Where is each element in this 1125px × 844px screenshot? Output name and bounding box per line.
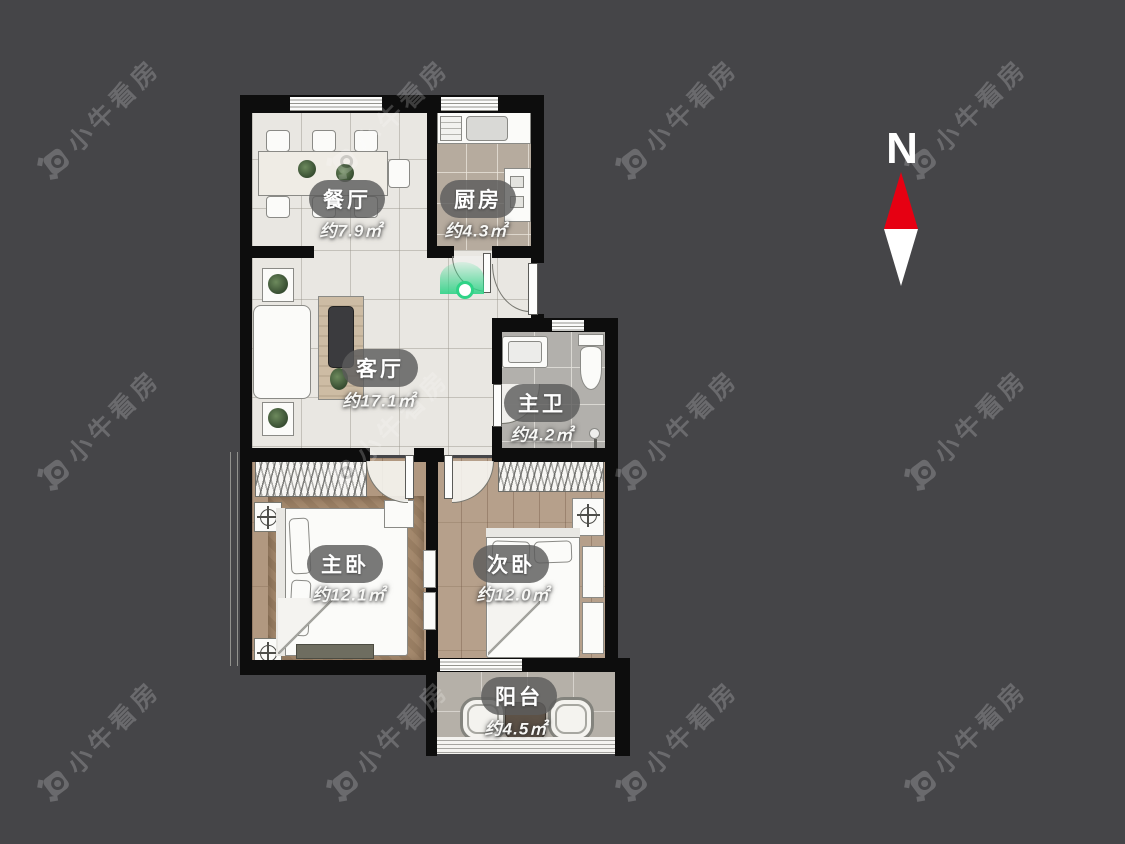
second-side-table	[582, 602, 604, 654]
watermark: 小牛看房	[31, 660, 179, 808]
watermark: 小牛看房	[898, 349, 1046, 497]
dining-window	[290, 97, 382, 111]
kitchen-drawer-unit	[440, 116, 462, 141]
bathroom-door-leaf	[493, 384, 502, 427]
wall-bath-left-a	[492, 318, 502, 384]
bathroom-window	[552, 320, 584, 331]
master-bedroom-door-leaf	[405, 455, 414, 499]
second-bedroom-door-leaf	[444, 455, 453, 499]
master-nightstand	[384, 500, 414, 528]
second-bed-headboard	[486, 528, 580, 538]
living-plant	[268, 274, 288, 294]
exterior-contour-line	[230, 452, 238, 666]
room-area-kitchen: 约4.3㎡	[445, 217, 508, 242]
kitchen-window	[441, 97, 498, 111]
sliding-door-panel	[423, 550, 436, 588]
floorplan-page: { "title": "户型图", "compass": { "label": …	[0, 0, 1125, 844]
second-duvet-fold	[488, 600, 540, 656]
watermark-bull-logo-icon	[34, 451, 76, 493]
watermark-bull-logo-icon	[323, 762, 365, 804]
living-plant	[268, 408, 288, 428]
wall-balcony-cap-r	[615, 736, 630, 756]
watermark-bull-logo-icon	[612, 140, 654, 182]
room-area-living: 约17.1㎡	[342, 387, 415, 412]
wall-left	[240, 95, 252, 675]
wall-bath-right	[605, 318, 618, 460]
compass-north-label: N	[878, 124, 926, 174]
watermark-text: 小牛看房	[925, 49, 1035, 159]
wall-dining-kitchen	[427, 110, 437, 252]
dining-chair	[388, 159, 410, 188]
watermark-bull-logo-icon	[901, 451, 943, 493]
watermark-text: 小牛看房	[636, 671, 746, 781]
wall-top	[240, 95, 544, 113]
room-area-balcony: 约4.5㎡	[485, 715, 548, 740]
watermark-text: 小牛看房	[925, 671, 1035, 781]
room-label-master-bedroom: 主卧	[307, 545, 383, 583]
room-area-second-bedroom: 约12.0㎡	[476, 581, 549, 606]
wall-kitchen-bottom-r	[492, 246, 533, 258]
table-plant	[298, 160, 316, 178]
compass-arrow-north-icon	[884, 172, 918, 229]
shower-head	[589, 428, 600, 439]
wall-bedroom-right	[605, 448, 618, 662]
floorplan-canvas: 餐厅 约7.9㎡ 厨房 约4.3㎡ 客厅 约17.1㎡ 主卫 约4.2㎡ 主卧 …	[0, 0, 1125, 844]
sliding-door-panel	[423, 592, 436, 630]
wall-kitchen-right-a	[531, 95, 544, 263]
dining-chair	[354, 130, 378, 152]
dining-chair	[312, 130, 336, 152]
watermark-text: 小牛看房	[636, 49, 746, 159]
entry-marker-dot	[456, 281, 474, 299]
watermark: 小牛看房	[31, 349, 179, 497]
watermark-bull-logo-icon	[612, 762, 654, 804]
watermark-text: 小牛看房	[636, 360, 746, 470]
room-label-kitchen: 厨房	[440, 180, 516, 218]
watermark: 小牛看房	[31, 38, 179, 186]
kitchen-appliance-knob	[510, 176, 524, 188]
wall-balcony-cap-l	[426, 736, 437, 756]
wall-dining-bottom	[252, 246, 314, 258]
watermark-text: 小牛看房	[58, 49, 168, 159]
room-area-master-bath: 约4.2㎡	[511, 421, 574, 446]
toilet-bowl	[580, 346, 602, 390]
watermark: 小牛看房	[609, 349, 757, 497]
room-area-dining: 约7.9㎡	[320, 217, 383, 242]
kitchen-sink	[466, 116, 508, 141]
room-label-dining: 餐厅	[309, 180, 385, 218]
watermark: 小牛看房	[898, 660, 1046, 808]
balcony-door-window	[440, 659, 522, 671]
watermark: 小牛看房	[609, 660, 757, 808]
second-side-table	[582, 546, 604, 598]
kitchen-door-leaf	[483, 253, 491, 293]
watermark: 小牛看房	[609, 38, 757, 186]
master-wardrobe	[255, 461, 367, 497]
room-area-master-bedroom: 约12.1㎡	[312, 581, 385, 606]
room-label-living: 客厅	[342, 349, 418, 387]
watermark-text: 小牛看房	[925, 360, 1035, 470]
entry-door-leaf	[528, 263, 538, 315]
toilet-tank	[578, 334, 604, 346]
watermark-bull-logo-icon	[34, 762, 76, 804]
desk-lamp	[576, 502, 600, 528]
master-duvet-fold	[278, 598, 334, 654]
watermark-bull-logo-icon	[901, 762, 943, 804]
wall-mid-a	[240, 448, 370, 462]
compass-arrow-south-icon	[884, 229, 918, 286]
room-label-second-bedroom: 次卧	[473, 545, 549, 583]
watermark-bull-logo-icon	[612, 451, 654, 493]
dining-chair	[266, 196, 290, 218]
watermark-text: 小牛看房	[58, 360, 168, 470]
balcony-railing	[437, 737, 615, 754]
room-label-balcony: 阳台	[481, 677, 557, 715]
wall-kitchen-bottom-l	[427, 246, 454, 258]
wall-master-bottom	[240, 660, 428, 675]
bathroom-sink-basin	[508, 341, 542, 363]
watermark-text: 小牛看房	[58, 671, 168, 781]
second-wardrobe	[498, 458, 604, 492]
dining-chair	[266, 130, 290, 152]
wall-mid-c	[492, 448, 618, 462]
watermark-bull-logo-icon	[34, 140, 76, 182]
sofa	[253, 305, 311, 399]
room-label-master-bath: 主卫	[504, 384, 580, 422]
